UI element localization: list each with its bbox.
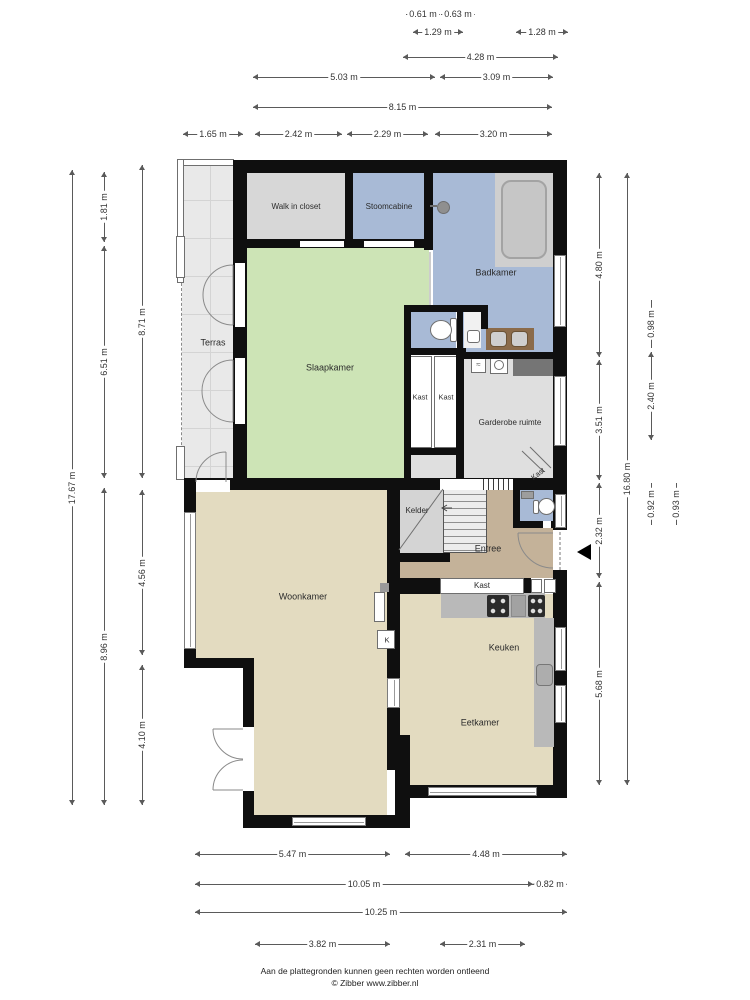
room-label-kast-hal: Kast xyxy=(474,582,490,590)
dimension-line: 2.40 m xyxy=(646,352,658,440)
dimension-line: 8.15 m xyxy=(253,102,552,114)
window xyxy=(428,787,537,796)
dimension-line: 0.93 m xyxy=(671,483,683,525)
dimension-label: 8.71 m xyxy=(138,306,148,338)
toilet-icon xyxy=(430,320,452,340)
wall xyxy=(345,172,353,242)
dimension-label: 16.80 m xyxy=(623,461,633,498)
dimension-line: 0.63 m xyxy=(441,9,475,21)
sink-icon xyxy=(521,491,534,499)
dimension-label: 10.05 m xyxy=(346,880,383,890)
dimension-label: 4.80 m xyxy=(595,249,605,281)
wall xyxy=(481,305,488,329)
dimension-label: 3.09 m xyxy=(481,73,513,83)
stove-icon xyxy=(528,595,545,617)
floorplan-canvas: 0.61 m0.63 m1.29 m1.28 m4.28 m5.03 m3.09… xyxy=(0,0,750,1000)
door-opening xyxy=(235,263,245,327)
kelder-floor xyxy=(398,487,443,553)
kitchen-sink-icon xyxy=(536,664,553,686)
dimension-label: 1.29 m xyxy=(422,28,454,38)
dimension-label: 2.40 m xyxy=(647,380,657,412)
dimension-label: 2.29 m xyxy=(372,130,404,140)
dimension-label: 1.65 m xyxy=(197,130,229,140)
sink-icon xyxy=(467,330,480,343)
wall xyxy=(184,490,196,512)
fireplace-icon xyxy=(374,592,385,622)
wall xyxy=(456,352,464,480)
door-opening xyxy=(196,480,230,492)
dimension-label: 4.48 m xyxy=(470,850,502,860)
dimension-line: 5.68 m xyxy=(594,582,606,785)
dimension-label: 1.81 m xyxy=(100,191,110,223)
dimension-label: 2.31 m xyxy=(467,940,499,950)
counter-dark xyxy=(513,356,553,376)
dimension-label: 0.61 m xyxy=(407,10,439,20)
window xyxy=(554,376,566,446)
dimension-label: 5.03 m xyxy=(328,73,360,83)
sink-icon xyxy=(511,331,528,347)
stove-icon xyxy=(487,595,509,617)
room-label-kelder: Kelder xyxy=(405,507,428,515)
woonkamer-floor xyxy=(196,490,387,658)
dimension-line: 0.82 m xyxy=(533,879,567,891)
dimension-label: 4.28 m xyxy=(465,53,497,63)
footer-disclaimer: Aan de plattegronden kunnen geen rechten… xyxy=(0,965,750,977)
dimension-line: 3.20 m xyxy=(435,129,552,141)
dimension-line: 3.09 m xyxy=(440,72,553,84)
room-label-walk-in-closet: Walk in closet xyxy=(271,203,320,211)
wall xyxy=(524,578,531,594)
dimension-line: 8.96 m xyxy=(99,488,111,805)
sink-icon xyxy=(490,331,507,347)
laundry-basket-icon: ≈ xyxy=(471,357,486,373)
dimension-line: 0.98 m xyxy=(646,300,658,348)
window xyxy=(184,512,196,649)
room-label-terras: Terras xyxy=(200,339,225,348)
interior-glass-door xyxy=(387,678,400,708)
dimension-label: 6.51 m xyxy=(100,346,110,378)
footer: Aan de plattegronden kunnen geen rechten… xyxy=(0,965,750,990)
dimension-line: 1.65 m xyxy=(183,129,243,141)
dimension-line: 10.25 m xyxy=(195,907,567,919)
dimension-line: 2.29 m xyxy=(347,129,428,141)
wall xyxy=(457,312,463,348)
window xyxy=(555,627,566,671)
dimension-line: 3.51 m xyxy=(594,360,606,480)
kitchen-sink-icon xyxy=(511,595,526,617)
dimension-line: 5.47 m xyxy=(195,849,390,861)
shower-icon xyxy=(437,201,450,214)
dimension-line: 3.82 m xyxy=(255,939,390,951)
window xyxy=(555,685,566,723)
dimension-label: 0.63 m xyxy=(442,10,474,20)
dimension-line: 0.92 m xyxy=(646,483,658,525)
dimension-line: 0.61 m xyxy=(406,9,440,21)
room-label-woonkamer: Woonkamer xyxy=(279,593,327,602)
dimension-line: 16.80 m xyxy=(622,173,634,785)
dimension-label: 8.15 m xyxy=(387,103,419,113)
door-opening xyxy=(235,358,245,424)
stairs-hatch xyxy=(483,479,513,490)
dimension-line: 1.81 m xyxy=(99,172,111,242)
washing-machine-door-icon xyxy=(494,360,504,370)
dimension-label: 4.56 m xyxy=(138,557,148,589)
kast-closet xyxy=(434,356,457,448)
dimension-label: 5.68 m xyxy=(595,668,605,700)
window xyxy=(554,255,566,327)
terras-grid-line xyxy=(210,163,211,480)
stairs-passage xyxy=(440,479,483,490)
wall xyxy=(400,578,440,594)
appliance-icon xyxy=(531,579,542,593)
dimension-line: 6.51 m xyxy=(99,246,111,478)
room-label-kast-b: Kast xyxy=(438,393,453,401)
terras-post xyxy=(176,446,185,480)
fireplace-icon xyxy=(380,583,389,592)
wall xyxy=(393,553,450,562)
door-opening xyxy=(364,241,414,247)
terras-wall-top xyxy=(177,159,234,166)
dimension-line: 17.67 m xyxy=(67,170,79,805)
dimension-label: 3.20 m xyxy=(478,130,510,140)
dimension-line: 4.28 m xyxy=(403,52,558,64)
dimension-label: 0.92 m xyxy=(647,488,657,520)
terras-post xyxy=(176,236,185,278)
dimension-line: 10.05 m xyxy=(195,879,533,891)
dimension-label: 0.98 m xyxy=(647,308,657,340)
room-label-garderobe: Garderobe ruimte xyxy=(479,419,542,427)
entree-floor xyxy=(487,490,513,528)
bathtub-icon xyxy=(501,180,547,259)
room-label-slaapkamer: Slaapkamer xyxy=(306,364,354,373)
room-label-kast-a: Kast xyxy=(412,393,427,401)
wall xyxy=(462,352,553,359)
wall xyxy=(404,305,488,312)
dimension-label: 0.93 m xyxy=(672,488,682,520)
dimension-line: 8.71 m xyxy=(137,165,149,478)
dimension-label: 5.47 m xyxy=(277,850,309,860)
wall xyxy=(245,160,567,173)
dimension-line: 2.32 m xyxy=(594,483,606,578)
wall xyxy=(404,448,464,455)
slaapkamer-floor xyxy=(247,248,429,305)
terras-floor xyxy=(182,163,233,480)
toilet-icon xyxy=(538,498,555,515)
dimension-label: 8.96 m xyxy=(100,631,110,663)
room-label-kast-k: K xyxy=(384,636,389,644)
door-opening xyxy=(543,521,551,528)
dimension-label: 0.82 m xyxy=(534,880,566,890)
room-label-entree: Entree xyxy=(475,545,502,554)
dimension-line: 2.31 m xyxy=(440,939,525,951)
room-label-eetkamer: Eetkamer xyxy=(461,719,500,728)
dimension-label: 10.25 m xyxy=(363,908,400,918)
dimension-line: 4.56 m xyxy=(137,490,149,655)
footer-copyright: © Zibber www.zibber.nl xyxy=(0,977,750,989)
dimension-line: 4.10 m xyxy=(137,665,149,805)
dimension-label: 17.67 m xyxy=(68,469,78,506)
dimension-label: 3.82 m xyxy=(307,940,339,950)
dimension-label: 2.32 m xyxy=(595,515,605,547)
dimension-line: 2.42 m xyxy=(255,129,342,141)
slaapkamer-floor xyxy=(247,305,404,478)
keuken-eetkamer-floor xyxy=(400,594,553,785)
room-label-badkamer: Badkamer xyxy=(475,269,516,278)
dimension-line: 1.29 m xyxy=(413,27,463,39)
front-door-opening xyxy=(553,530,567,570)
entrance-arrow-icon xyxy=(577,544,591,560)
dimension-label: 1.28 m xyxy=(526,28,558,38)
appliance-icon xyxy=(544,579,556,593)
woonkamer-floor xyxy=(254,658,387,816)
dimension-label: 4.10 m xyxy=(138,719,148,751)
dimension-label: 2.42 m xyxy=(283,130,315,140)
dimension-line: 4.80 m xyxy=(594,173,606,357)
room-label-stoomcabine: Stoomcabine xyxy=(366,203,413,211)
window xyxy=(292,817,366,826)
door-opening xyxy=(243,727,254,791)
room-label-keuken: Keuken xyxy=(489,644,520,653)
door-opening xyxy=(300,241,344,247)
passage-floor xyxy=(411,455,456,478)
dimension-line: 1.28 m xyxy=(516,27,568,39)
dimension-label: 3.51 m xyxy=(595,404,605,436)
window xyxy=(555,494,566,528)
dimension-line: 5.03 m xyxy=(253,72,435,84)
dimension-line: 4.48 m xyxy=(405,849,567,861)
